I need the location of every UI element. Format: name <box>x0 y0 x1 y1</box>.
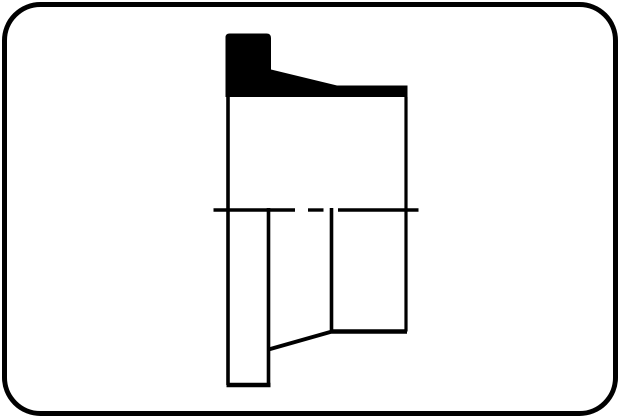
sign-panel <box>0 0 620 418</box>
technical-drawing-svg <box>0 0 620 418</box>
